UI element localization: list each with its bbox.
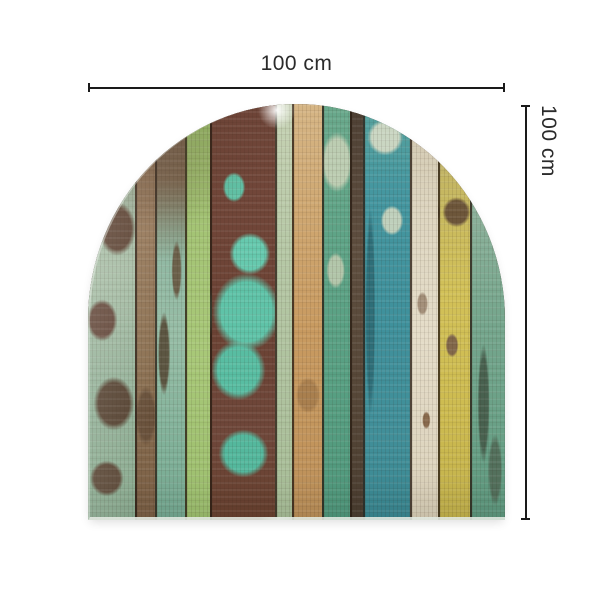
wood-plank-6 [275, 104, 292, 520]
width-dimension-label: 100 cm [88, 51, 505, 77]
wood-plank-3 [155, 104, 185, 520]
arched-wood-plank-panel [88, 104, 505, 520]
wood-plank-7 [292, 104, 322, 520]
wood-plank-1 [88, 104, 135, 520]
wood-plank-2 [135, 104, 155, 520]
wood-plank-8 [322, 104, 350, 520]
wood-plank-4 [185, 104, 210, 520]
product-dimension-image: 100 cm 100 cm [0, 0, 600, 600]
height-dimension-label: 100 cm [536, 105, 560, 520]
wood-plank-12 [438, 104, 470, 520]
wood-plank-10 [363, 104, 410, 520]
height-dimension-line [521, 105, 530, 520]
wood-plank-11 [410, 104, 438, 520]
width-dimension-line [88, 83, 505, 92]
wood-plank-9 [350, 104, 363, 520]
wood-plank-13 [470, 104, 505, 520]
wood-plank-5 [210, 104, 275, 520]
plank-row [88, 104, 505, 520]
